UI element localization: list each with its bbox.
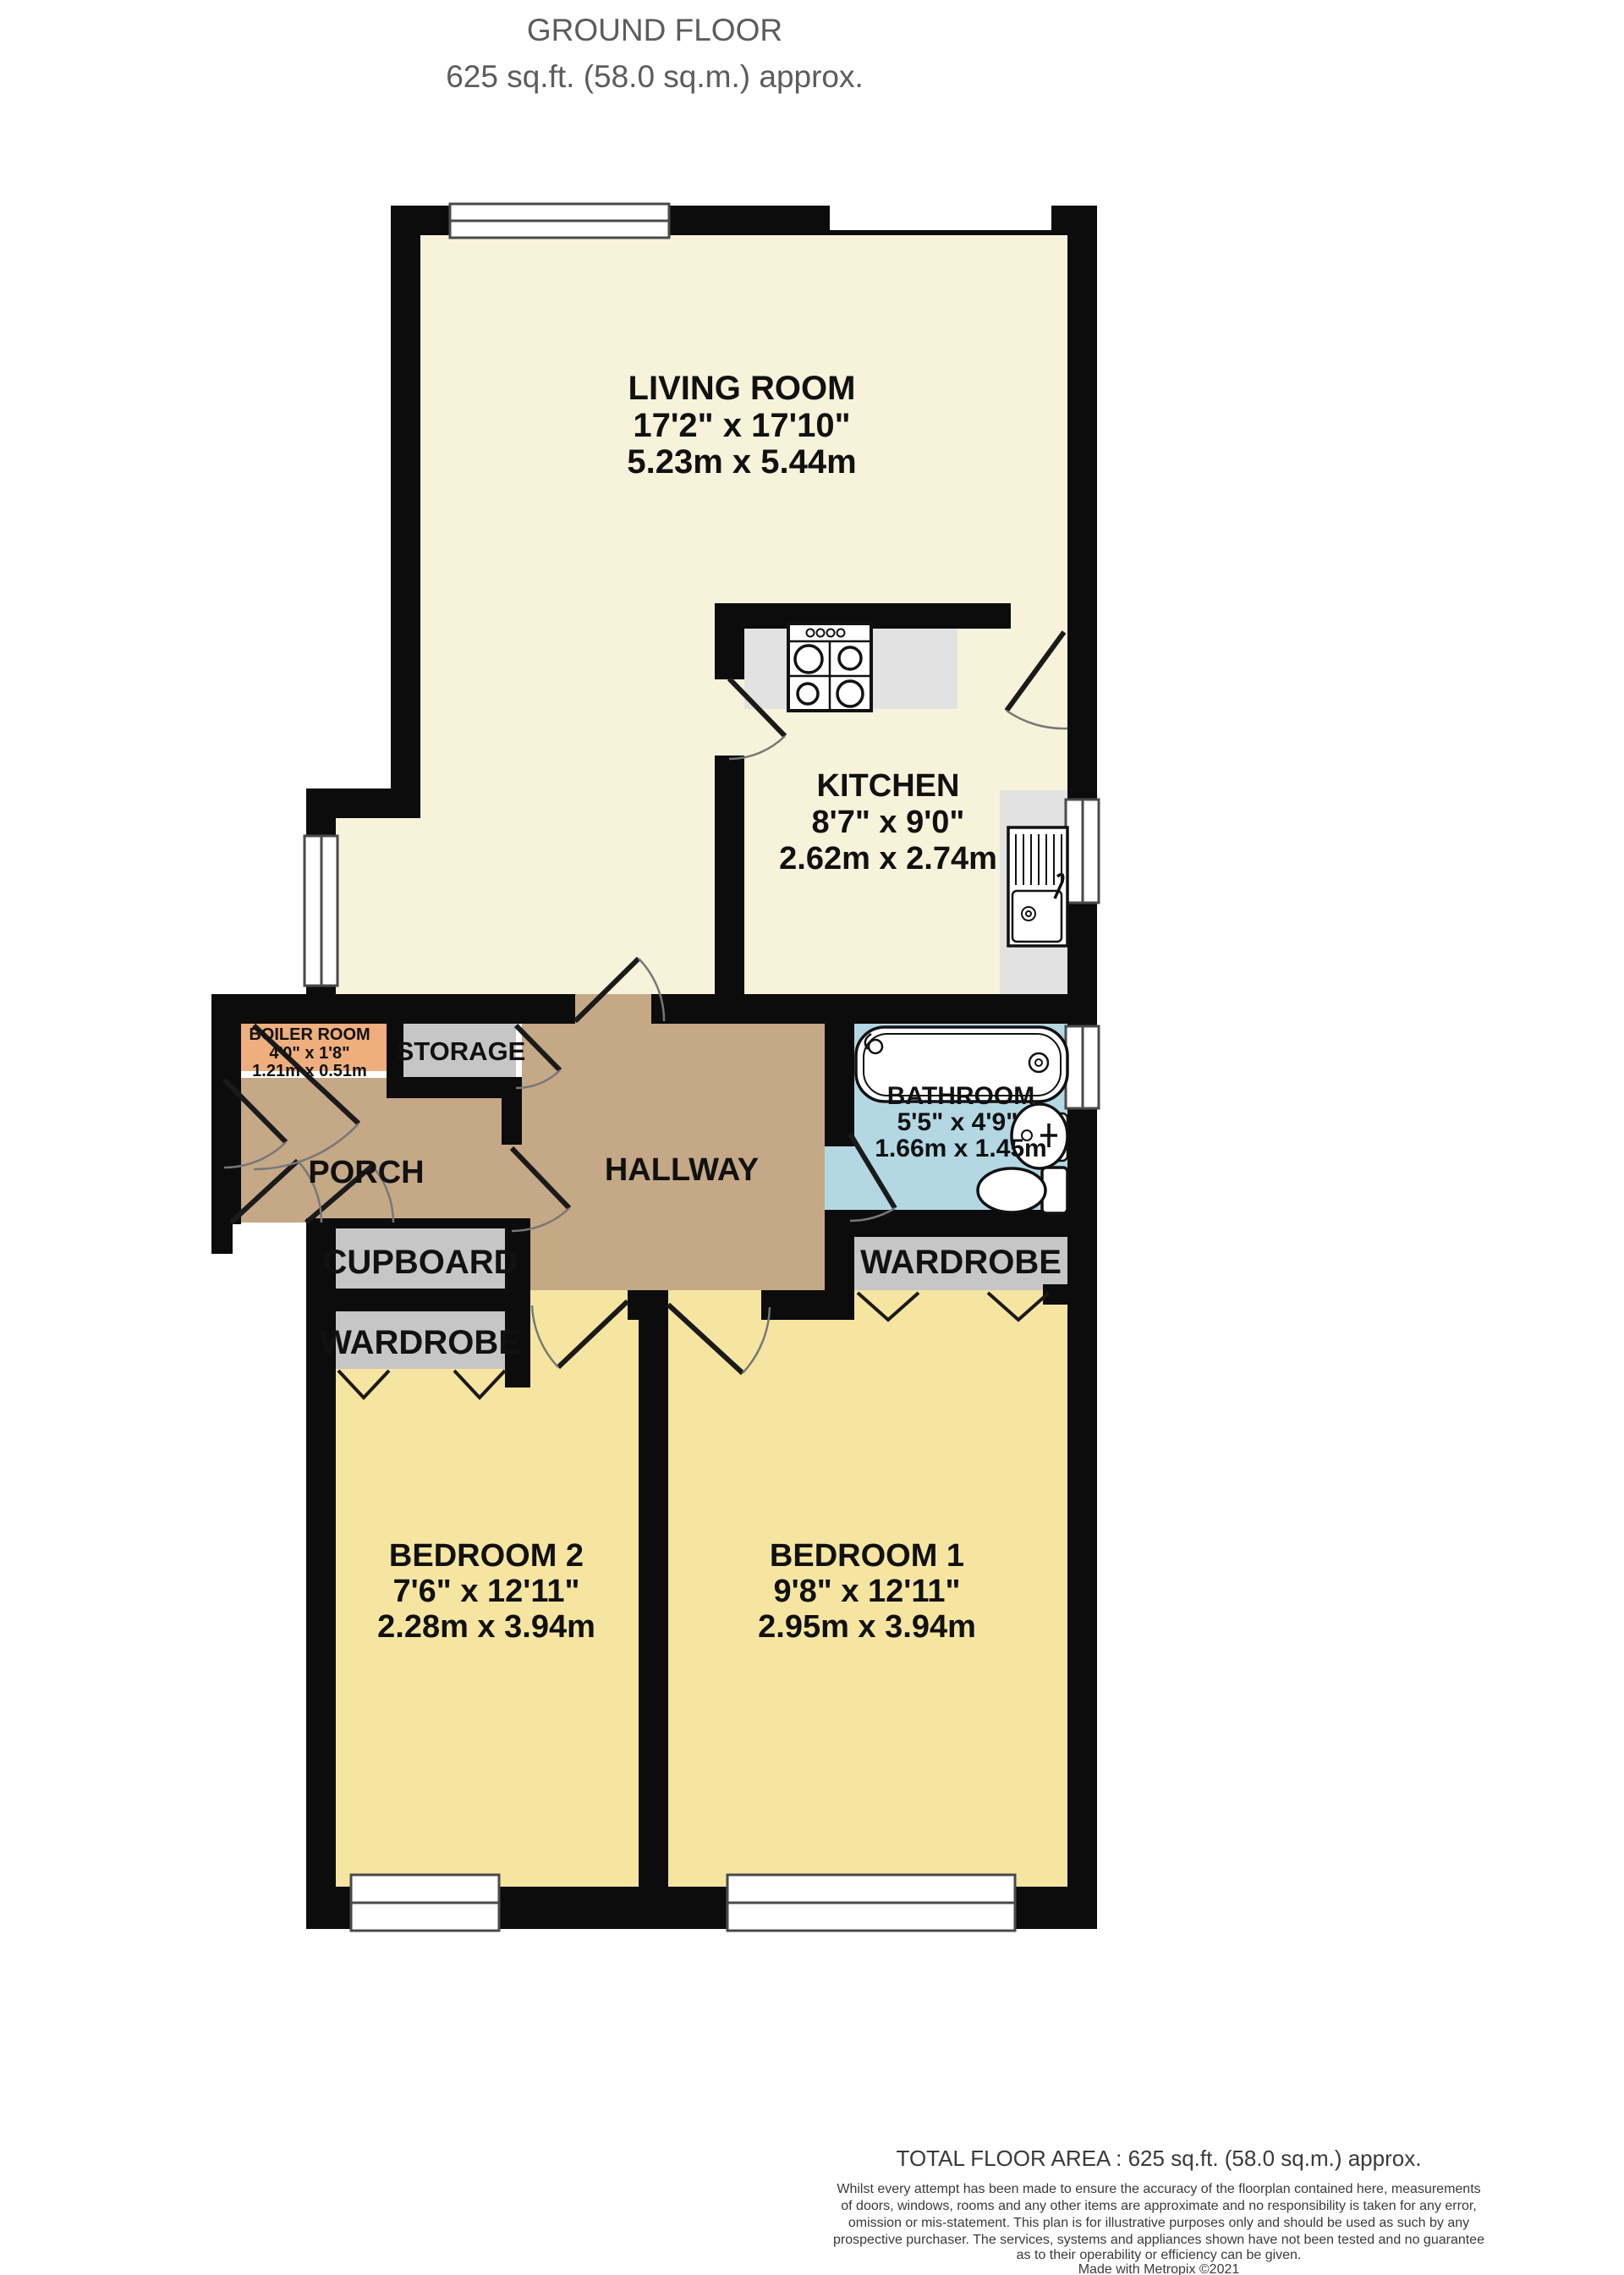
bedroom2-doorway-floor (530, 1290, 628, 1324)
svg-text:8'7" x 9'0": 8'7" x 9'0" (812, 805, 965, 840)
bathroom-doorway-floor (825, 1146, 854, 1212)
page-subtitle: 625 sq.ft. (58.0 sq.m.) approx. (446, 59, 864, 94)
total-floor-area: TOTAL FLOOR AREA : 625 sq.ft. (58.0 sq.m… (897, 2146, 1422, 2171)
porch-label: PORCH (308, 1155, 424, 1190)
header: GROUND FLOOR 625 sq.ft. (58.0 sq.m.) app… (446, 13, 864, 94)
page-title: GROUND FLOOR (527, 13, 782, 47)
toilet-icon (978, 1168, 1067, 1213)
footer: TOTAL FLOOR AREA : 625 sq.ft. (58.0 sq.m… (833, 2146, 1484, 2275)
disclaimer-line: prospective purchaser. The services, sys… (833, 2233, 1484, 2247)
svg-text:1.66m x 1.45m: 1.66m x 1.45m (875, 1135, 1046, 1162)
window-bedroom2-bottom (351, 1875, 499, 1931)
window-kitchen-right (1066, 800, 1099, 903)
svg-text:2.28m x 3.94m: 2.28m x 3.94m (377, 1609, 595, 1645)
window-living-left (304, 836, 337, 986)
floorplan-canvas: GROUND FLOOR 625 sq.ft. (58.0 sq.m.) app… (0, 0, 1624, 2275)
stove-icon (788, 624, 871, 711)
window-bathroom-right (1066, 1026, 1099, 1108)
metropix-credit: Made with Metropix ©2021 (1078, 2262, 1240, 2275)
wardrobe-left-label: WARDROBE (320, 1324, 521, 1361)
bedroom2-label: BEDROOM 2 7'6" x 12'11" 2.28m x 3.94m (377, 1538, 595, 1645)
disclaimer-line: Whilst every attempt has been made to en… (837, 2182, 1480, 2196)
svg-text:9'8" x 12'11": 9'8" x 12'11" (773, 1574, 960, 1609)
svg-text:2.95m x 3.94m: 2.95m x 3.94m (758, 1609, 976, 1645)
svg-text:5.23m x 5.44m: 5.23m x 5.44m (627, 443, 856, 481)
svg-text:2.62m x 2.74m: 2.62m x 2.74m (779, 841, 997, 876)
svg-text:5'5" x 4'9": 5'5" x 4'9" (897, 1108, 1018, 1136)
wardrobe-right-label: WARDROBE (860, 1244, 1062, 1281)
disclaimer-line: as to their operability or efficiency ca… (1017, 2248, 1302, 2262)
svg-text:1.21m x 0.51m: 1.21m x 0.51m (252, 1062, 367, 1080)
living-room-label: LIVING ROOM 17'2" x 17'10" 5.23m x 5.44m (627, 370, 856, 481)
svg-text:LIVING ROOM: LIVING ROOM (628, 370, 856, 407)
svg-text:BEDROOM 2: BEDROOM 2 (389, 1538, 584, 1574)
svg-text:BATHROOM: BATHROOM (887, 1082, 1034, 1110)
kitchen-sink-icon (1008, 827, 1067, 946)
hallway-label: HALLWAY (605, 1152, 759, 1188)
svg-text:4'0" x 1'8": 4'0" x 1'8" (269, 1044, 349, 1063)
storage-label: STORAGE (397, 1036, 526, 1066)
disclaimer-line: of doors, windows, rooms and any other i… (841, 2199, 1476, 2213)
bedroom1-label: BEDROOM 1 9'8" x 12'11" 2.95m x 3.94m (758, 1538, 976, 1645)
svg-text:17'2" x 17'10": 17'2" x 17'10" (633, 407, 850, 444)
disclaimer-line: omission or mis-statement. This plan is … (848, 2216, 1469, 2230)
svg-text:KITCHEN: KITCHEN (817, 768, 960, 804)
window-bedroom1-bottom (727, 1875, 1015, 1931)
svg-text:BOILER ROOM: BOILER ROOM (249, 1025, 370, 1044)
floorplan-page: GROUND FLOOR 625 sq.ft. (58.0 sq.m.) app… (0, 0, 1624, 2275)
svg-text:7'6" x 12'11": 7'6" x 12'11" (392, 1574, 579, 1609)
window-living-top (450, 204, 669, 238)
cupboard-label: CUPBOARD (322, 1244, 518, 1281)
svg-text:BEDROOM 1: BEDROOM 1 (770, 1538, 964, 1574)
